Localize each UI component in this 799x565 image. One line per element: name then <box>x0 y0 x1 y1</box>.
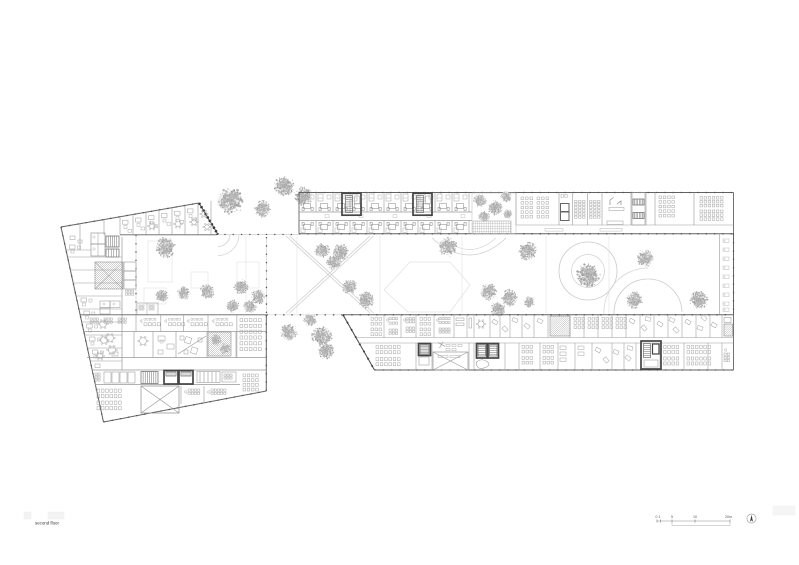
svg-text:second floor: second floor <box>35 520 59 525</box>
svg-text:0 1: 0 1 <box>656 515 661 519</box>
svg-text:20m: 20m <box>725 515 732 519</box>
svg-text:10: 10 <box>693 515 697 519</box>
svg-text:5: 5 <box>671 515 673 519</box>
